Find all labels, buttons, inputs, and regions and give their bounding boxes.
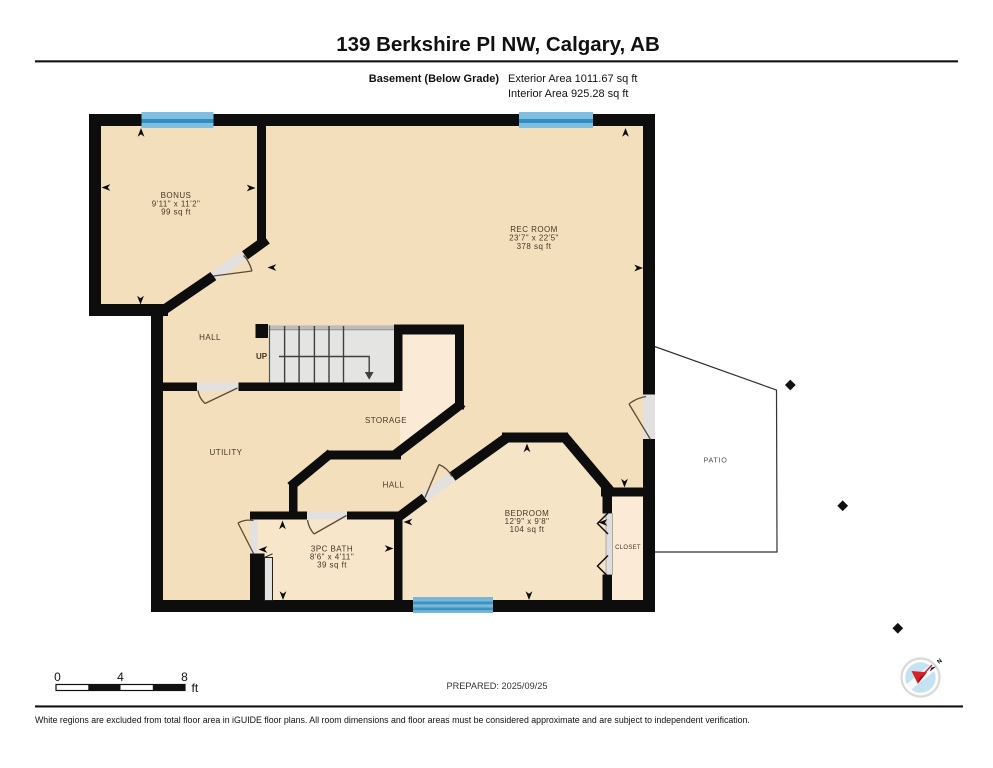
svg-text:PREPARED: 2025/09/25: PREPARED: 2025/09/25: [447, 681, 548, 691]
svg-text:99 sq ft: 99 sq ft: [161, 208, 191, 217]
svg-text:139 Berkshire Pl NW, Calgary,: 139 Berkshire Pl NW, Calgary, AB: [336, 33, 660, 56]
svg-text:White regions are excluded fro: White regions are excluded from total fl…: [35, 715, 750, 725]
svg-text:CLOSET: CLOSET: [615, 545, 641, 551]
svg-text:104 sq ft: 104 sq ft: [510, 525, 545, 534]
svg-text:HALL: HALL: [199, 333, 221, 342]
svg-text:HALL: HALL: [383, 481, 405, 490]
svg-text:378 sq ft: 378 sq ft: [517, 242, 552, 251]
svg-text:0: 0: [54, 670, 61, 684]
svg-text:ft: ft: [192, 681, 199, 695]
svg-text:PATIO: PATIO: [704, 456, 728, 465]
svg-text:Basement (Below Grade): Basement (Below Grade): [369, 73, 500, 85]
svg-text:39 sq ft: 39 sq ft: [317, 561, 347, 570]
svg-text:UTILITY: UTILITY: [210, 448, 243, 457]
svg-text:8: 8: [181, 670, 188, 684]
svg-text:Exterior Area 1011.67 sq ft: Exterior Area 1011.67 sq ft: [508, 73, 637, 85]
svg-text:UP: UP: [256, 352, 268, 361]
svg-text:4: 4: [117, 670, 124, 684]
svg-text:Interior Area 925.28 sq ft: Interior Area 925.28 sq ft: [508, 88, 628, 100]
svg-text:STORAGE: STORAGE: [365, 416, 407, 425]
